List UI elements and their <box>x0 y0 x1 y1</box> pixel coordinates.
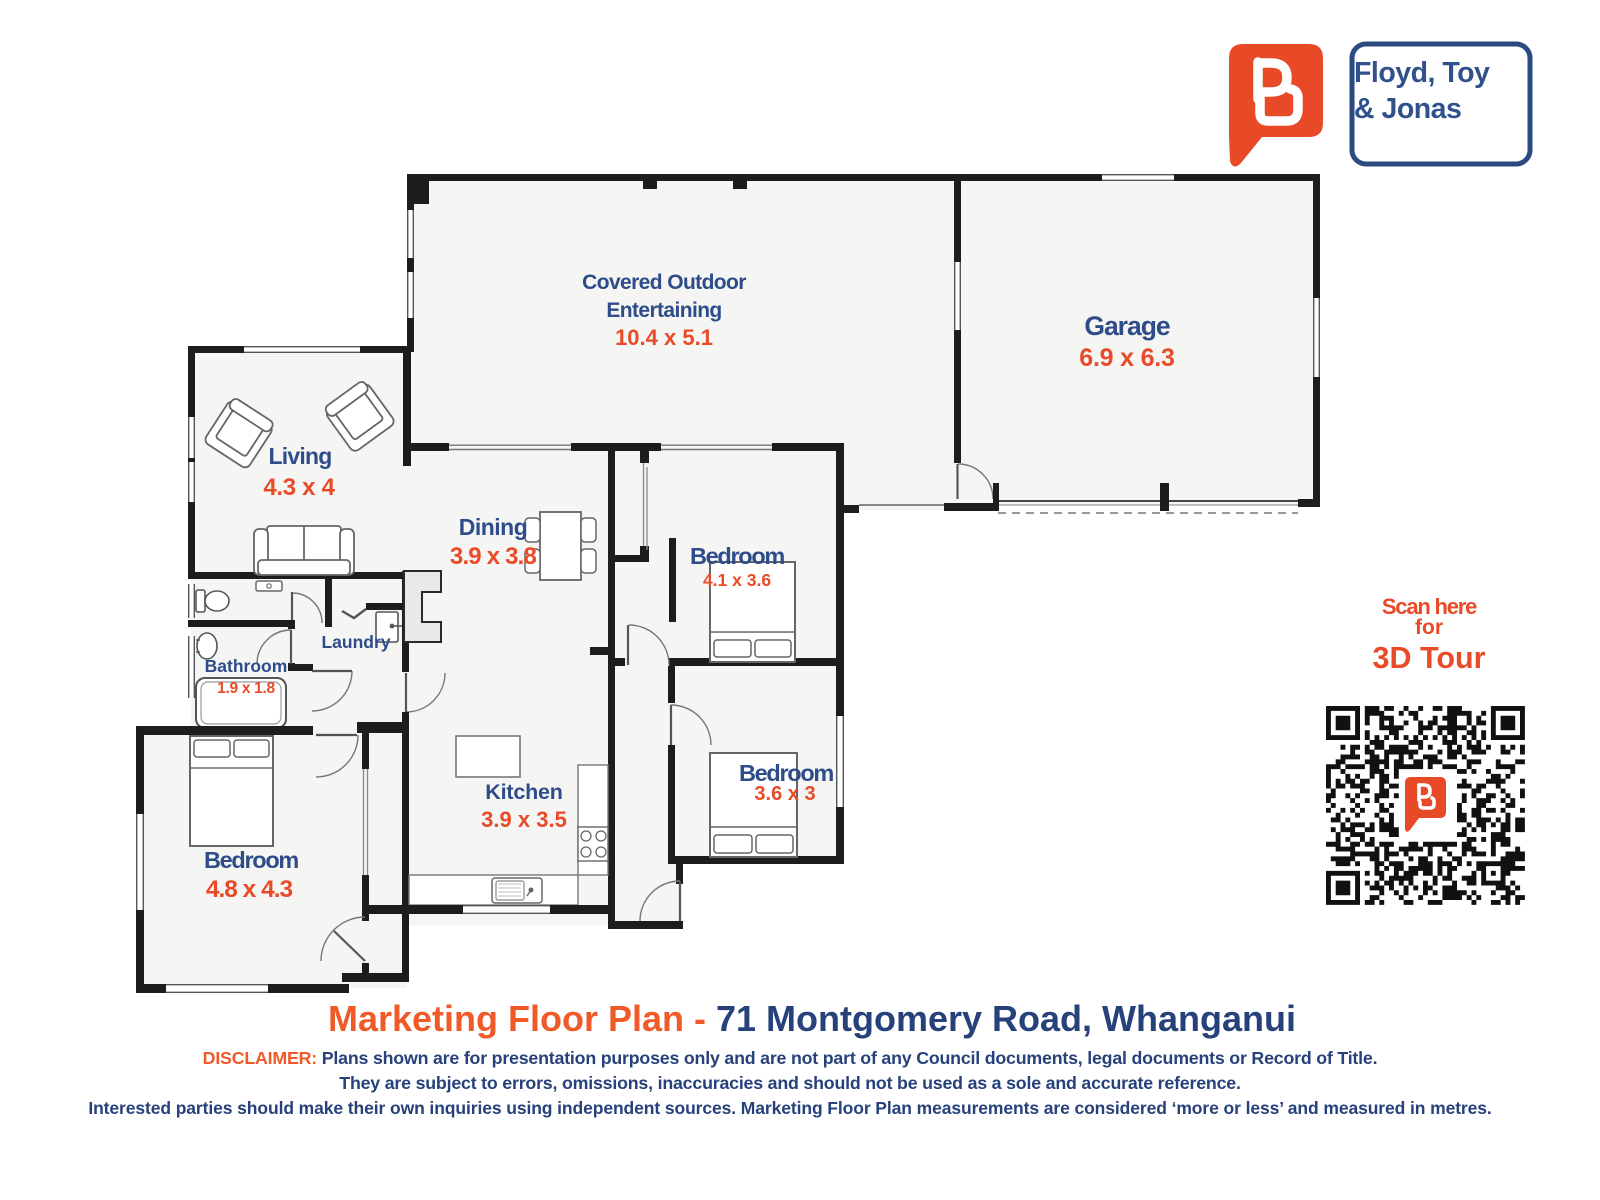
svg-text:They are subject to errors, om: They are subject to errors, omissions, i… <box>339 1073 1240 1093</box>
svg-text:3.6 x 3: 3.6 x 3 <box>754 783 815 805</box>
svg-text:Bedroom: Bedroom <box>204 847 298 873</box>
svg-text:10.4 x 5.1: 10.4 x 5.1 <box>615 325 713 350</box>
svg-text:DISCLAIMER: Plans shown are f: DISCLAIMER: Plans shown are for presenta… <box>203 1048 1378 1068</box>
svg-text:4.3 x 4: 4.3 x 4 <box>263 474 335 501</box>
svg-text:& Jonas: & Jonas <box>1354 93 1461 125</box>
svg-text:1.9 x 1.8: 1.9 x 1.8 <box>217 680 275 697</box>
svg-text:Bathroom: Bathroom <box>205 656 288 676</box>
svg-text:Kitchen: Kitchen <box>485 780 562 804</box>
svg-text:Marketing Floor Plan - 71 Mon: Marketing Floor Plan - 71 Montgomery Roa… <box>328 998 1296 1039</box>
svg-text:Garage: Garage <box>1084 311 1170 341</box>
svg-text:for: for <box>1415 616 1443 639</box>
svg-text:4.1 x 3.6: 4.1 x 3.6 <box>703 570 771 590</box>
svg-text:3.9 x 3.5: 3.9 x 3.5 <box>481 807 567 832</box>
svg-text:Floyd, Toy: Floyd, Toy <box>1354 57 1490 89</box>
svg-text:Laundry: Laundry <box>321 632 390 652</box>
svg-text:Living: Living <box>269 443 332 469</box>
svg-text:Bedroom: Bedroom <box>690 543 784 569</box>
svg-text:Interested parties should make: Interested parties should make their own… <box>88 1098 1491 1118</box>
svg-text:6.9 x 6.3: 6.9 x 6.3 <box>1079 344 1175 372</box>
svg-text:Dining: Dining <box>459 514 528 540</box>
svg-text:3D Tour: 3D Tour <box>1373 641 1486 675</box>
svg-text:4.8 x 4.3: 4.8 x 4.3 <box>206 876 293 903</box>
svg-text:Covered Outdoor: Covered Outdoor <box>582 271 746 294</box>
svg-text:Entertaining: Entertaining <box>606 299 721 322</box>
svg-text:3.9 x 3.8: 3.9 x 3.8 <box>450 543 537 570</box>
